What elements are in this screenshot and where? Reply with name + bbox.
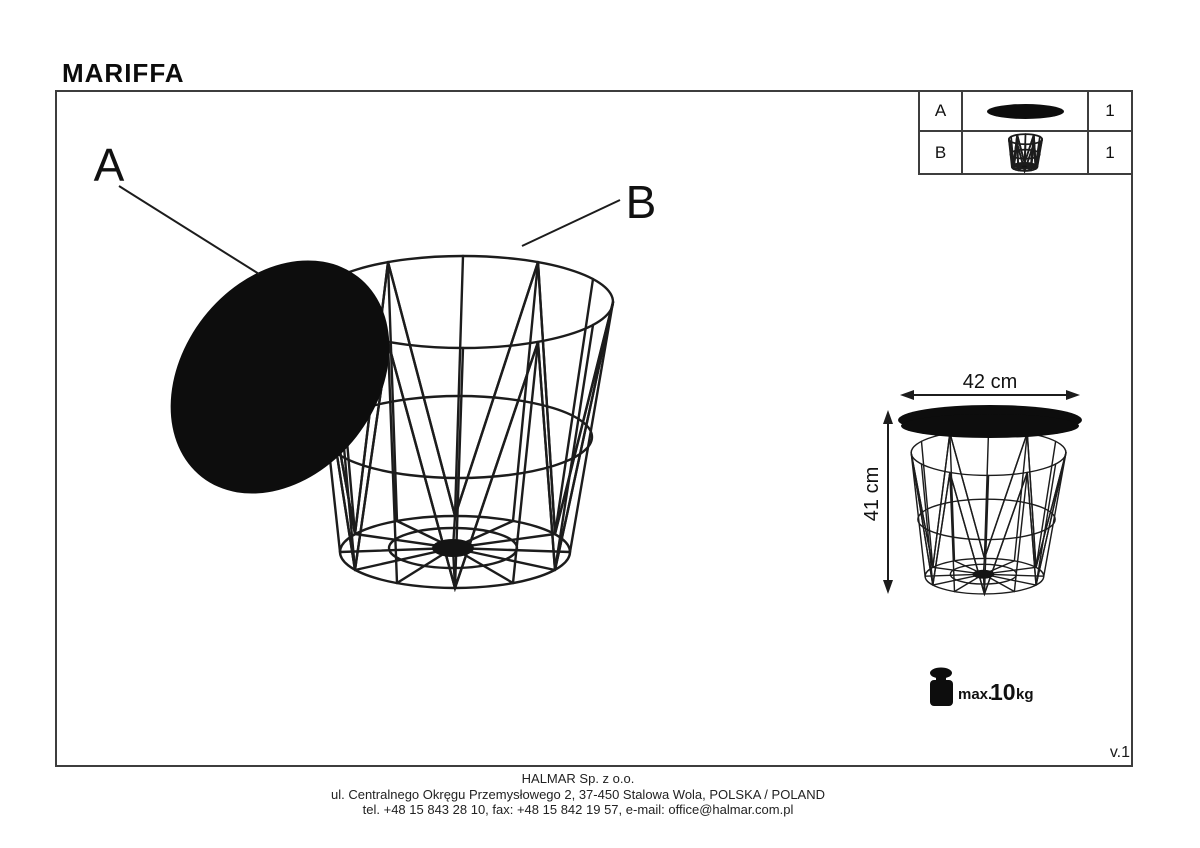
- parts-table: A 1 B 1: [918, 92, 1131, 175]
- part-id-label: B: [920, 132, 963, 173]
- solid-oval-lid-icon: [963, 92, 1089, 130]
- footer-company: HALMAR Sp. z o.o.: [0, 771, 1156, 787]
- parts-table-row-b: B 1: [920, 132, 1131, 173]
- spec-sheet-page: MARIFFA A 1 B 1 A B: [0, 0, 1200, 848]
- part-id-label: A: [920, 92, 963, 130]
- footer-contact: tel. +48 15 843 28 10, fax: +48 15 842 1…: [0, 802, 1156, 818]
- parts-table-row-a: A 1: [920, 92, 1131, 132]
- version-label: v.1: [1110, 744, 1130, 762]
- product-title: MARIFFA: [62, 58, 185, 89]
- part-qty: 1: [1089, 132, 1131, 173]
- drawing-frame: A 1 B 1: [55, 90, 1133, 767]
- footer-address: ul. Centralnego Okręgu Przemysłowego 2, …: [0, 787, 1156, 803]
- page-footer: HALMAR Sp. z o.o. ul. Centralnego Okręgu…: [0, 771, 1156, 818]
- wire-basket-icon: [963, 132, 1089, 173]
- part-qty: 1: [1089, 92, 1131, 130]
